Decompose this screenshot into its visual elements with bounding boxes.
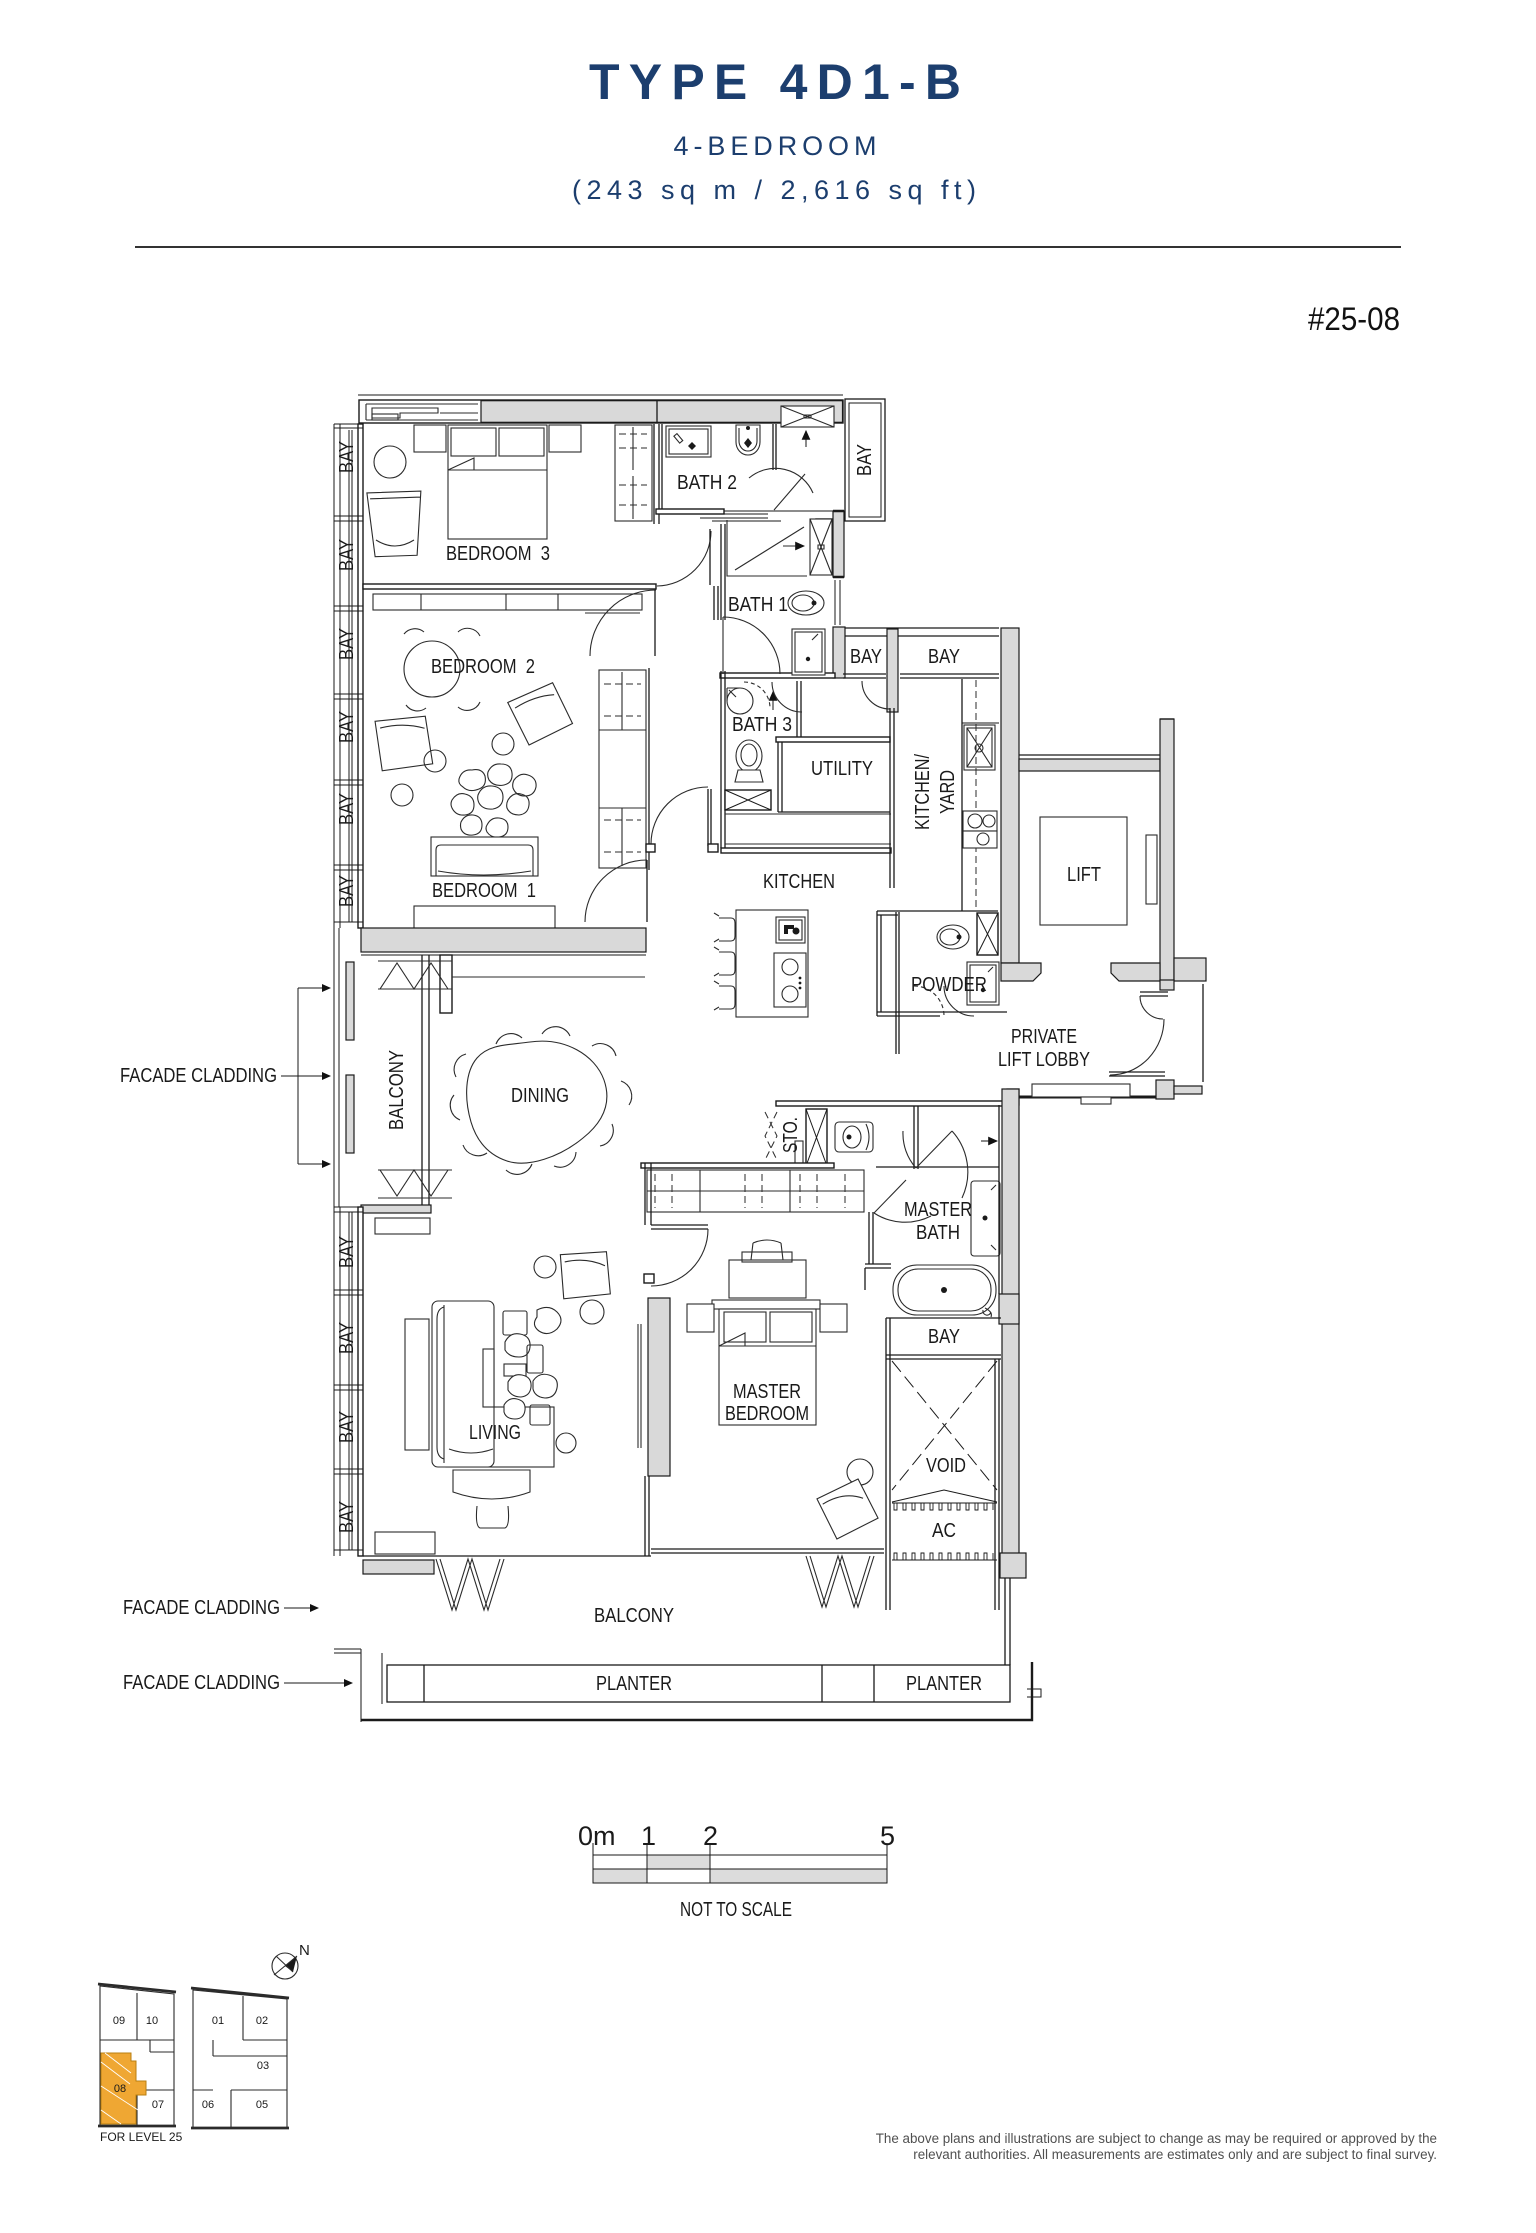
svg-text:BAY: BAY bbox=[854, 444, 876, 476]
svg-text:BAY: BAY bbox=[336, 1411, 358, 1443]
svg-text:10: 10 bbox=[146, 2015, 158, 2027]
svg-text:BAY: BAY bbox=[850, 646, 882, 668]
svg-text:BAY: BAY bbox=[336, 441, 358, 473]
svg-text:BAY: BAY bbox=[336, 875, 358, 907]
svg-text:UTILITY: UTILITY bbox=[811, 758, 873, 780]
svg-text:VOID: VOID bbox=[926, 1455, 966, 1477]
svg-text:4-BEDROOM: 4-BEDROOM bbox=[674, 131, 877, 161]
svg-text:FACADE CLADDING: FACADE CLADDING bbox=[120, 1065, 277, 1087]
svg-text:KITCHEN: KITCHEN bbox=[763, 871, 835, 893]
svg-text:06: 06 bbox=[202, 2099, 214, 2111]
svg-text:BAY: BAY bbox=[928, 1326, 960, 1348]
svg-text:FACADE CLADDING: FACADE CLADDING bbox=[123, 1597, 280, 1619]
svg-text:BEDROOM 3: BEDROOM 3 bbox=[446, 543, 550, 565]
svg-text:LIFT: LIFT bbox=[1067, 864, 1101, 886]
svg-text:PLANTER: PLANTER bbox=[596, 1673, 672, 1695]
svg-text:N: N bbox=[299, 1942, 310, 1959]
svg-text:0m: 0m bbox=[578, 1821, 616, 1851]
svg-text:BEDROOM: BEDROOM bbox=[725, 1403, 809, 1425]
svg-text:PRIVATE: PRIVATE bbox=[1011, 1026, 1077, 1048]
svg-text:FACADE CLADDING: FACADE CLADDING bbox=[123, 1672, 280, 1694]
svg-text:BATH 3: BATH 3 bbox=[732, 714, 792, 736]
svg-text:PLANTER: PLANTER bbox=[906, 1673, 982, 1695]
svg-text:01: 01 bbox=[212, 2015, 224, 2027]
svg-text:BALCONY: BALCONY bbox=[594, 1605, 674, 1627]
svg-text:BAY: BAY bbox=[336, 1322, 358, 1354]
svg-text:LIVING: LIVING bbox=[469, 1422, 521, 1444]
svg-text:BAY: BAY bbox=[928, 646, 960, 668]
svg-text:BEDROOM 2: BEDROOM 2 bbox=[431, 656, 535, 678]
svg-text:1: 1 bbox=[641, 1821, 656, 1851]
svg-text:BEDROOM 1: BEDROOM 1 bbox=[432, 880, 536, 902]
svg-text:BAY: BAY bbox=[336, 628, 358, 660]
svg-text:LIFT LOBBY: LIFT LOBBY bbox=[998, 1049, 1090, 1071]
svg-text:KITCHEN/: KITCHEN/ bbox=[912, 754, 934, 830]
svg-text:STO.: STO. bbox=[780, 1117, 802, 1153]
svg-text:07: 07 bbox=[152, 2099, 164, 2111]
svg-text:09: 09 bbox=[113, 2015, 125, 2027]
svg-text:BAY: BAY bbox=[336, 1236, 358, 1268]
svg-text:YARD: YARD bbox=[937, 770, 959, 814]
svg-text:2: 2 bbox=[703, 1821, 718, 1851]
svg-text:#25-08: #25-08 bbox=[1308, 301, 1400, 337]
svg-text:POWDER: POWDER bbox=[911, 974, 987, 996]
svg-text:BAY: BAY bbox=[336, 1501, 358, 1533]
svg-text:NOT TO SCALE: NOT TO SCALE bbox=[680, 1899, 792, 1921]
svg-text:FOR LEVEL 25: FOR LEVEL 25 bbox=[100, 2130, 183, 2144]
svg-text:05: 05 bbox=[256, 2099, 268, 2111]
svg-text:BATH 1: BATH 1 bbox=[728, 594, 788, 616]
svg-text:BAY: BAY bbox=[336, 539, 358, 571]
svg-text:03: 03 bbox=[257, 2060, 269, 2072]
svg-text:BAY: BAY bbox=[336, 793, 358, 825]
svg-text:BATH 2: BATH 2 bbox=[677, 472, 737, 494]
svg-text:TYPE 4D1-B: TYPE 4D1-B bbox=[589, 54, 961, 110]
svg-text:(243 sq m / 2,616 sq ft): (243 sq m / 2,616 sq ft) bbox=[572, 175, 976, 205]
svg-text:BATH: BATH bbox=[916, 1222, 960, 1244]
svg-text:08: 08 bbox=[114, 2083, 126, 2095]
svg-text:MASTER: MASTER bbox=[733, 1381, 801, 1403]
svg-text:5: 5 bbox=[880, 1821, 895, 1851]
svg-text:02: 02 bbox=[256, 2015, 268, 2027]
svg-text:BAY: BAY bbox=[336, 711, 358, 743]
svg-text:MASTER: MASTER bbox=[904, 1199, 972, 1221]
svg-text:BALCONY: BALCONY bbox=[386, 1050, 408, 1130]
svg-text:AC: AC bbox=[932, 1520, 956, 1542]
svg-text:DINING: DINING bbox=[511, 1085, 569, 1107]
